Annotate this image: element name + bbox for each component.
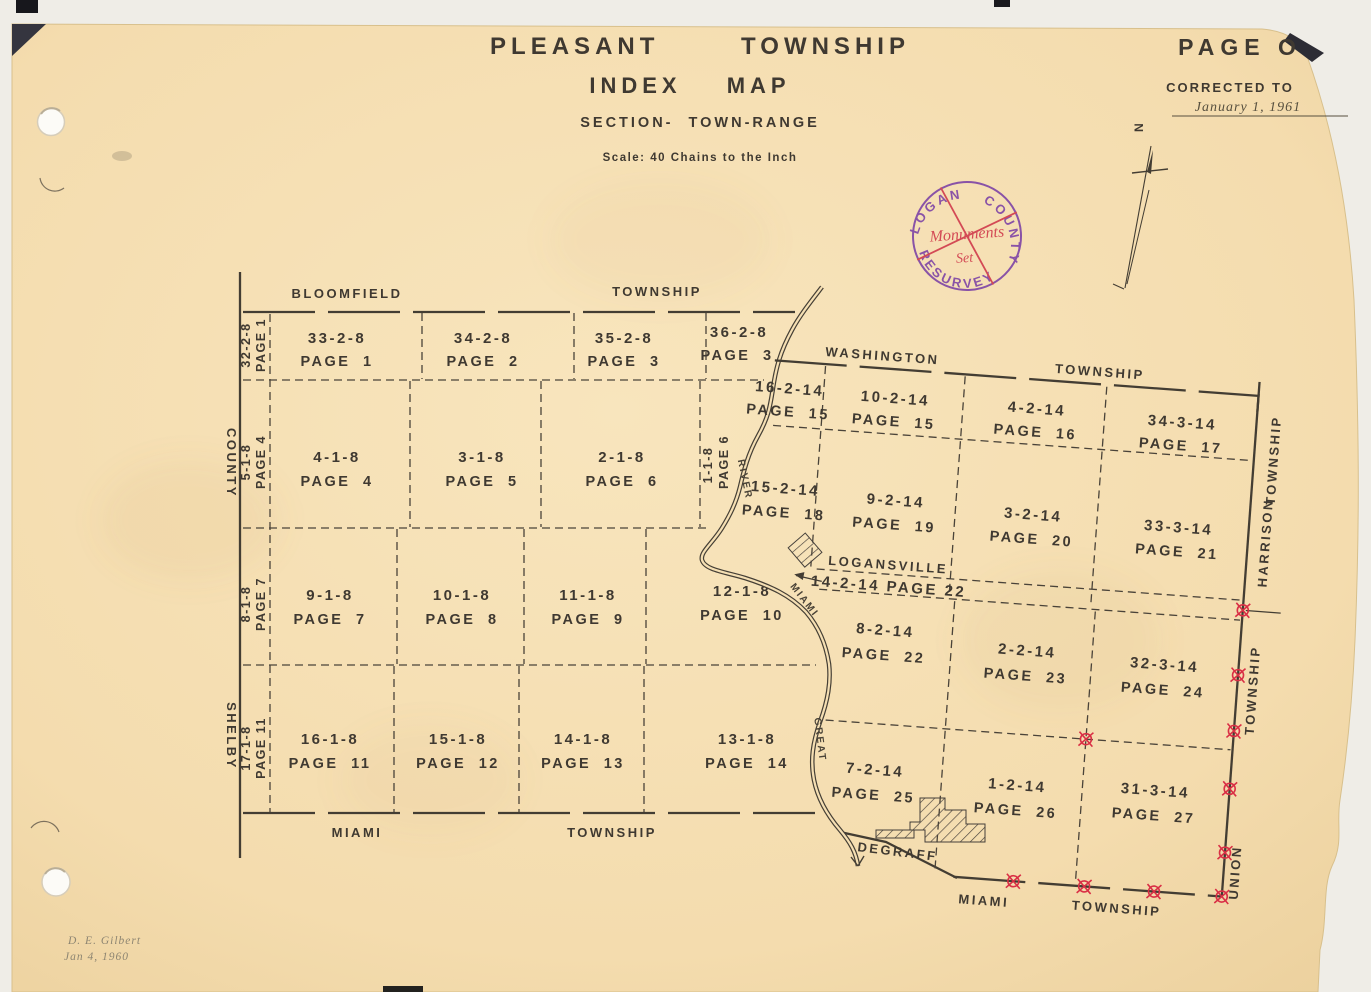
section-label: 33-2-8	[308, 330, 366, 347]
smudge-mark	[112, 151, 132, 161]
monument-marker	[1078, 732, 1093, 747]
page-title-line2: INDEX MAP	[589, 73, 790, 98]
section-label: 15-1-8	[429, 731, 487, 748]
monument-marker	[1146, 884, 1161, 899]
section-label: 3-1-8	[458, 449, 506, 466]
top-edge-tab	[16, 0, 38, 13]
corrected-to-label: CORRECTED TO	[1166, 80, 1294, 95]
monument-marker	[1006, 874, 1021, 889]
edge-cell-section: 1-1-8	[701, 447, 715, 484]
edge-cell-page: PAGE 6	[717, 435, 731, 489]
section-page-label: PAGE 10	[700, 608, 784, 624]
corrected-to-date: January 1, 1961	[1195, 100, 1301, 115]
monument-marker	[1235, 603, 1250, 618]
edge-cell-section: 5-1-8	[239, 444, 253, 481]
monument-marker	[1218, 845, 1233, 860]
edge-cell-page: PAGE 1	[254, 318, 268, 372]
section-label: 2-1-8	[598, 449, 646, 466]
edge-cell-section: 17-1-8	[239, 725, 253, 770]
monument-marker	[1222, 781, 1237, 796]
section-label: 36-2-8	[710, 324, 768, 341]
county-label-logan-side: COUNTY	[224, 428, 239, 498]
monument-marker	[1077, 879, 1092, 894]
section-page-label: PAGE 7	[293, 612, 366, 628]
monument-marker	[1214, 889, 1229, 904]
bottom-edge-mark	[383, 986, 423, 992]
township-label-bloomfield-suffix: TOWNSHIP	[612, 284, 702, 299]
township-label-bloomfield: BLOOMFIELD	[292, 286, 403, 301]
township-label-miami: MIAMI	[332, 825, 383, 840]
page-number-label: PAGE O	[1178, 34, 1302, 60]
section-label: 11-1-8	[559, 587, 617, 604]
monument-marker	[1231, 668, 1246, 683]
section-label: 10-1-8	[433, 587, 491, 604]
scanned-index-map-page: PLEASANT TOWNSHIP INDEX MAP SECTION- TOW…	[0, 0, 1371, 992]
section-page-label: PAGE 5	[445, 474, 518, 490]
edge-cell-page: PAGE 7	[254, 577, 268, 631]
section-label: 13-1-8	[718, 731, 776, 748]
page-subtitle: SECTION- TOWN-RANGE	[580, 115, 820, 131]
section-page-label: PAGE 6	[585, 474, 658, 490]
scale-note: Scale: 40 Chains to the Inch	[603, 152, 798, 164]
edge-cell-page: PAGE 11	[254, 717, 268, 779]
stamp-note-line2: Set	[956, 251, 975, 267]
section-page-label: PAGE 3	[700, 348, 773, 364]
section-page-label: PAGE 1	[300, 354, 373, 370]
section-page-label: PAGE 9	[551, 612, 624, 628]
section-label: 35-2-8	[595, 330, 653, 347]
page-title: PLEASANT TOWNSHIP	[490, 33, 910, 60]
section-page-label: PAGE 11	[289, 756, 372, 772]
monument-marker	[1226, 723, 1241, 738]
section-page-label: PAGE 13	[541, 756, 625, 772]
edge-cell-section: 32-2-8	[239, 322, 253, 367]
county-label-shelby: SHELBY	[224, 702, 239, 770]
section-page-label: PAGE 2	[446, 354, 519, 370]
section-page-label: PAGE 12	[416, 756, 500, 772]
section-label: 34-2-8	[454, 330, 512, 347]
top-edge-mark	[994, 0, 1010, 7]
section-page-label: PAGE 14	[705, 756, 789, 772]
section-page-label: PAGE 4	[300, 474, 373, 490]
edge-cell-page: PAGE 4	[254, 435, 268, 489]
section-label: 16-1-8	[301, 731, 359, 748]
township-label-miami-suffix: TOWNSHIP	[567, 825, 657, 840]
section-label: 9-1-8	[306, 587, 354, 604]
section-label: 4-1-8	[313, 449, 361, 466]
signature-name: D. E. Gilbert	[67, 935, 141, 947]
section-label: 14-1-8	[554, 731, 612, 748]
north-label: N	[1132, 123, 1146, 132]
edge-cell-section: 8-1-8	[239, 586, 253, 623]
section-page-label: PAGE 8	[425, 612, 498, 628]
section-page-label: PAGE 3	[587, 354, 660, 370]
degraff-plat-strip	[876, 830, 914, 838]
signature-date: Jan 4, 1960	[64, 951, 129, 963]
